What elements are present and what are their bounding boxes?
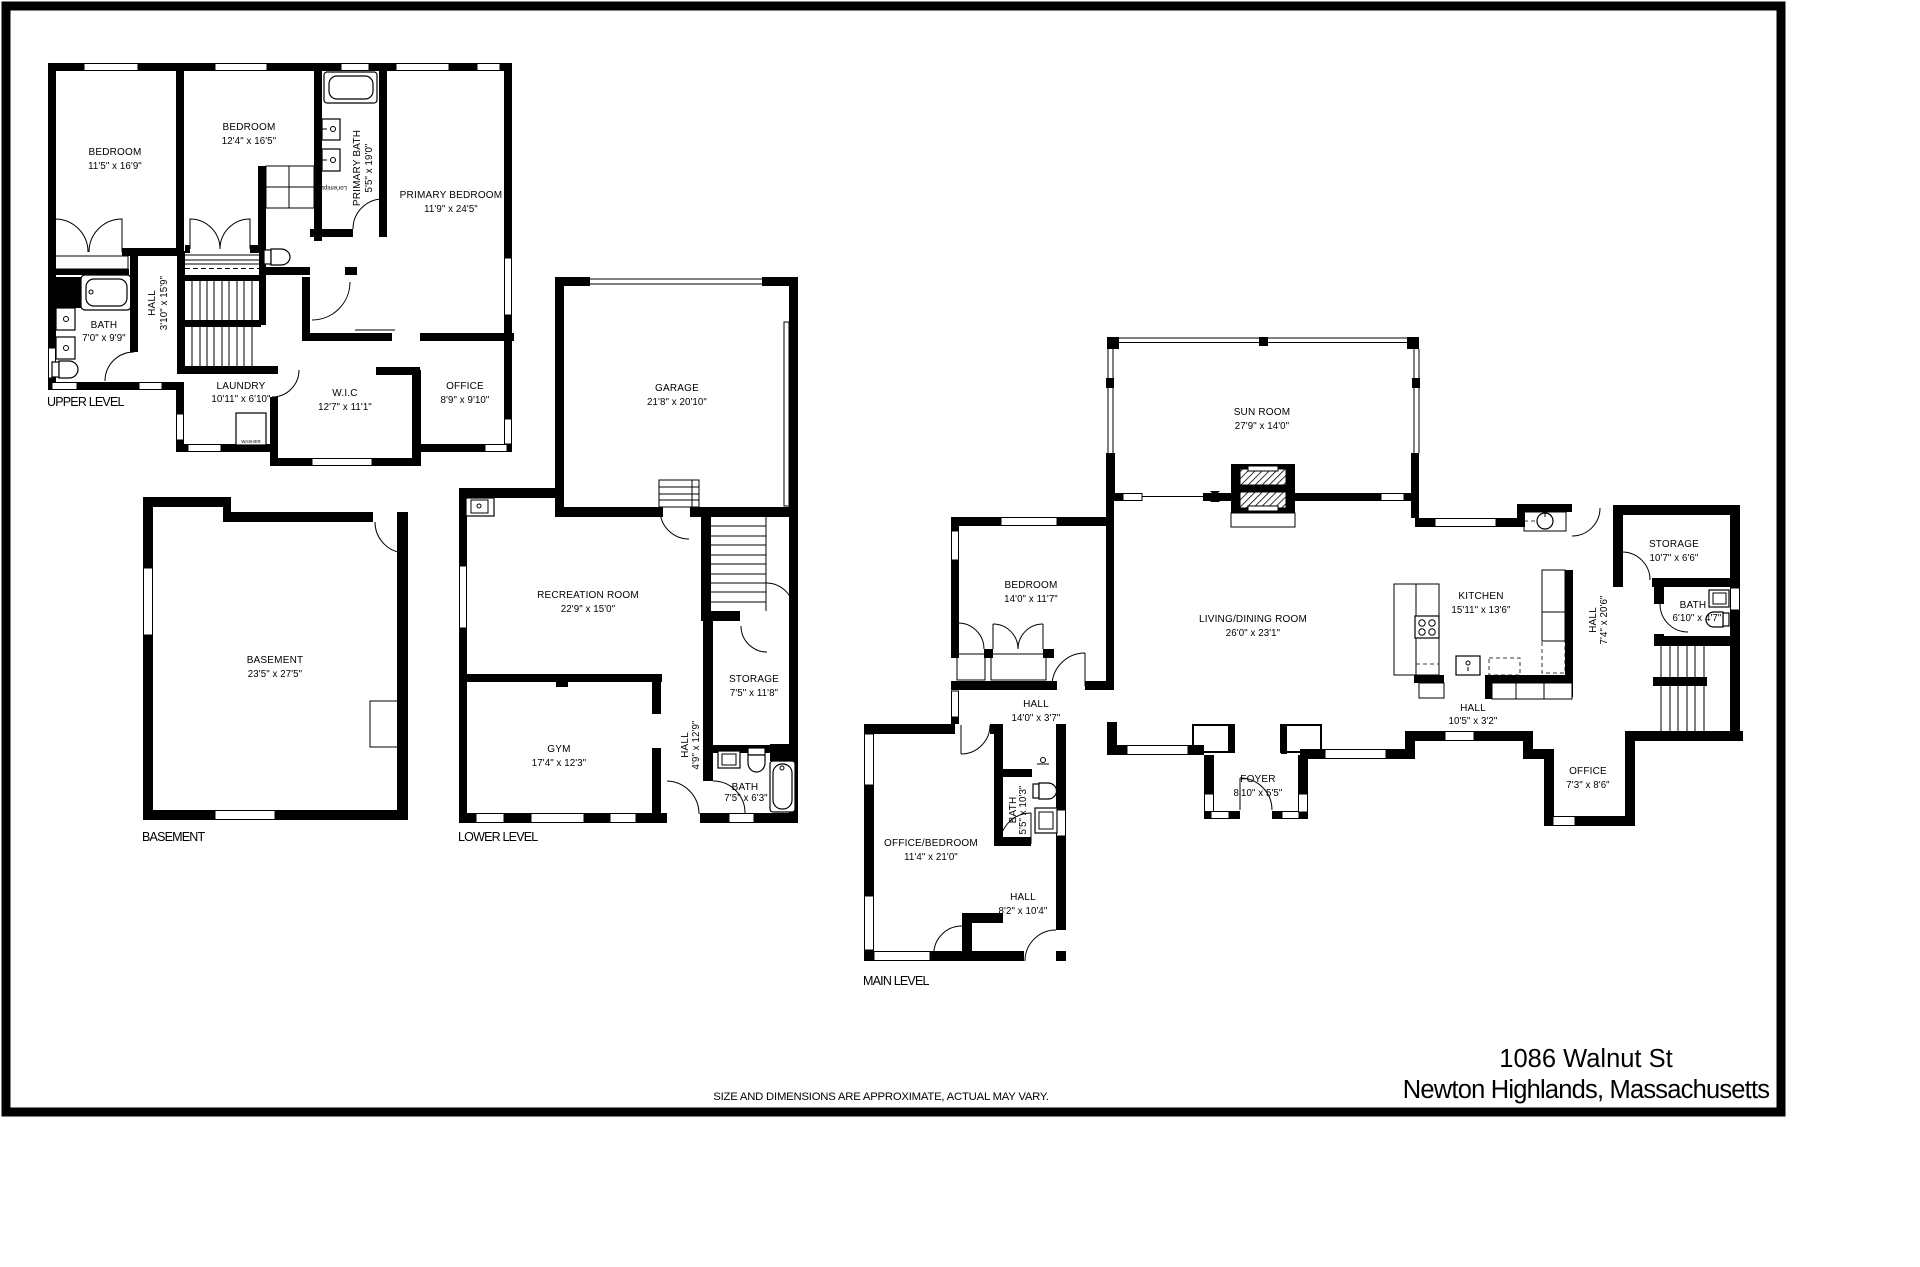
svg-text:27'9" x 14'0": 27'9" x 14'0" <box>1235 421 1290 432</box>
svg-text:Newton Highlands, Massachusett: Newton Highlands, Massachusetts <box>1403 1076 1769 1104</box>
svg-text:1086 Walnut St: 1086 Walnut St <box>1499 1045 1672 1073</box>
svg-text:WASHER: WASHER <box>241 439 261 444</box>
svg-text:KITCHEN: KITCHEN <box>1458 591 1503 602</box>
svg-text:PRIMARY BATH: PRIMARY BATH <box>352 130 363 206</box>
svg-text:W.I.C: W.I.C <box>332 388 357 399</box>
svg-text:10'5" x 3'2": 10'5" x 3'2" <box>1449 716 1498 727</box>
svg-text:23'5" x 27'5": 23'5" x 27'5" <box>248 669 303 680</box>
svg-text:OFFICE/BEDROOM: OFFICE/BEDROOM <box>884 838 978 849</box>
svg-text:BEDROOM: BEDROOM <box>88 147 141 158</box>
svg-text:HALL: HALL <box>1010 892 1036 903</box>
svg-text:GYM: GYM <box>547 744 570 755</box>
svg-text:5'5" x 19'0": 5'5" x 19'0" <box>364 143 375 192</box>
svg-text:OFFICE: OFFICE <box>1569 766 1607 777</box>
svg-text:UPPER LEVEL: UPPER LEVEL <box>47 395 125 409</box>
svg-text:BATH: BATH <box>91 320 118 331</box>
svg-text:11'5" x 16'9": 11'5" x 16'9" <box>88 161 142 172</box>
svg-text:HALL: HALL <box>147 290 158 316</box>
svg-text:3'10" x 15'9": 3'10" x 15'9" <box>159 275 170 330</box>
svg-text:11'4" x 21'0": 11'4" x 21'0" <box>904 852 958 863</box>
svg-text:7'5" x 6'3": 7'5" x 6'3" <box>724 793 768 804</box>
svg-text:Lor'emips: Lor'emips <box>321 184 347 190</box>
svg-text:8'9" x 9'10": 8'9" x 9'10" <box>441 395 490 406</box>
svg-text:17'4" x 12'3": 17'4" x 12'3" <box>532 758 587 769</box>
svg-text:BASEMENT: BASEMENT <box>247 655 304 666</box>
svg-text:OFFICE: OFFICE <box>446 381 484 392</box>
svg-text:7'4" x 20'6": 7'4" x 20'6" <box>1599 595 1610 644</box>
svg-text:21'8" x 20'10": 21'8" x 20'10" <box>647 397 707 408</box>
svg-text:10'11" x 6'10": 10'11" x 6'10" <box>211 394 271 405</box>
svg-text:22'9" x 15'0": 22'9" x 15'0" <box>561 604 616 615</box>
svg-text:LAUNDRY: LAUNDRY <box>216 381 265 392</box>
svg-text:HALL: HALL <box>1460 703 1486 714</box>
svg-text:FOYER: FOYER <box>1240 774 1275 785</box>
svg-text:BASEMENT: BASEMENT <box>142 830 206 844</box>
svg-text:7'5" x 11'8": 7'5" x 11'8" <box>730 688 779 699</box>
svg-text:LOWER LEVEL: LOWER LEVEL <box>458 830 538 844</box>
svg-text:10'7" x 6'6": 10'7" x 6'6" <box>1650 553 1699 564</box>
svg-text:26'0" x 23'1": 26'0" x 23'1" <box>1226 628 1281 639</box>
svg-text:12'7" x 11'1": 12'7" x 11'1" <box>318 402 372 413</box>
svg-text:8'2" x 10'4": 8'2" x 10'4" <box>999 906 1048 917</box>
svg-text:PRIMARY BEDROOM: PRIMARY BEDROOM <box>400 190 503 201</box>
svg-text:6'10" x 4'7": 6'10" x 4'7" <box>1673 613 1722 624</box>
svg-text:BEDROOM: BEDROOM <box>222 122 275 133</box>
svg-text:BEDROOM: BEDROOM <box>1004 580 1057 591</box>
svg-text:11'9" x 24'5": 11'9" x 24'5" <box>424 204 478 215</box>
svg-text:8'10" x 5'5": 8'10" x 5'5" <box>1234 788 1283 799</box>
svg-text:HALL: HALL <box>1023 699 1049 710</box>
svg-text:14'0" x 11'7": 14'0" x 11'7" <box>1004 594 1058 605</box>
svg-text:12'4" x 16'5": 12'4" x 16'5" <box>222 136 277 147</box>
svg-text:SIZE AND DIMENSIONS ARE APPROX: SIZE AND DIMENSIONS ARE APPROXIMATE, ACT… <box>713 1091 1049 1103</box>
svg-text:BATH: BATH <box>732 782 759 793</box>
svg-text:5'5" x 10'3": 5'5" x 10'3" <box>1018 785 1029 834</box>
svg-text:4'9" x 12'9": 4'9" x 12'9" <box>691 720 702 769</box>
svg-text:HALL: HALL <box>1588 607 1599 633</box>
svg-text:STORAGE: STORAGE <box>729 674 779 685</box>
svg-text:7'0" x 9'9": 7'0" x 9'9" <box>82 333 126 344</box>
svg-text:14'0" x 3'7": 14'0" x 3'7" <box>1012 713 1061 724</box>
svg-text:RECREATION ROOM: RECREATION ROOM <box>537 590 639 601</box>
svg-text:MAIN LEVEL: MAIN LEVEL <box>863 974 929 988</box>
svg-text:7'3" x 8'6": 7'3" x 8'6" <box>1566 780 1610 791</box>
svg-text:LIVING/DINING ROOM: LIVING/DINING ROOM <box>1199 614 1307 625</box>
svg-text:SUN ROOM: SUN ROOM <box>1234 407 1291 418</box>
svg-text:15'11" x 13'6": 15'11" x 13'6" <box>1451 605 1511 616</box>
svg-text:HALL: HALL <box>680 732 691 758</box>
svg-text:GARAGE: GARAGE <box>655 383 699 394</box>
svg-text:STORAGE: STORAGE <box>1649 539 1699 550</box>
svg-text:BATH: BATH <box>1680 600 1707 611</box>
